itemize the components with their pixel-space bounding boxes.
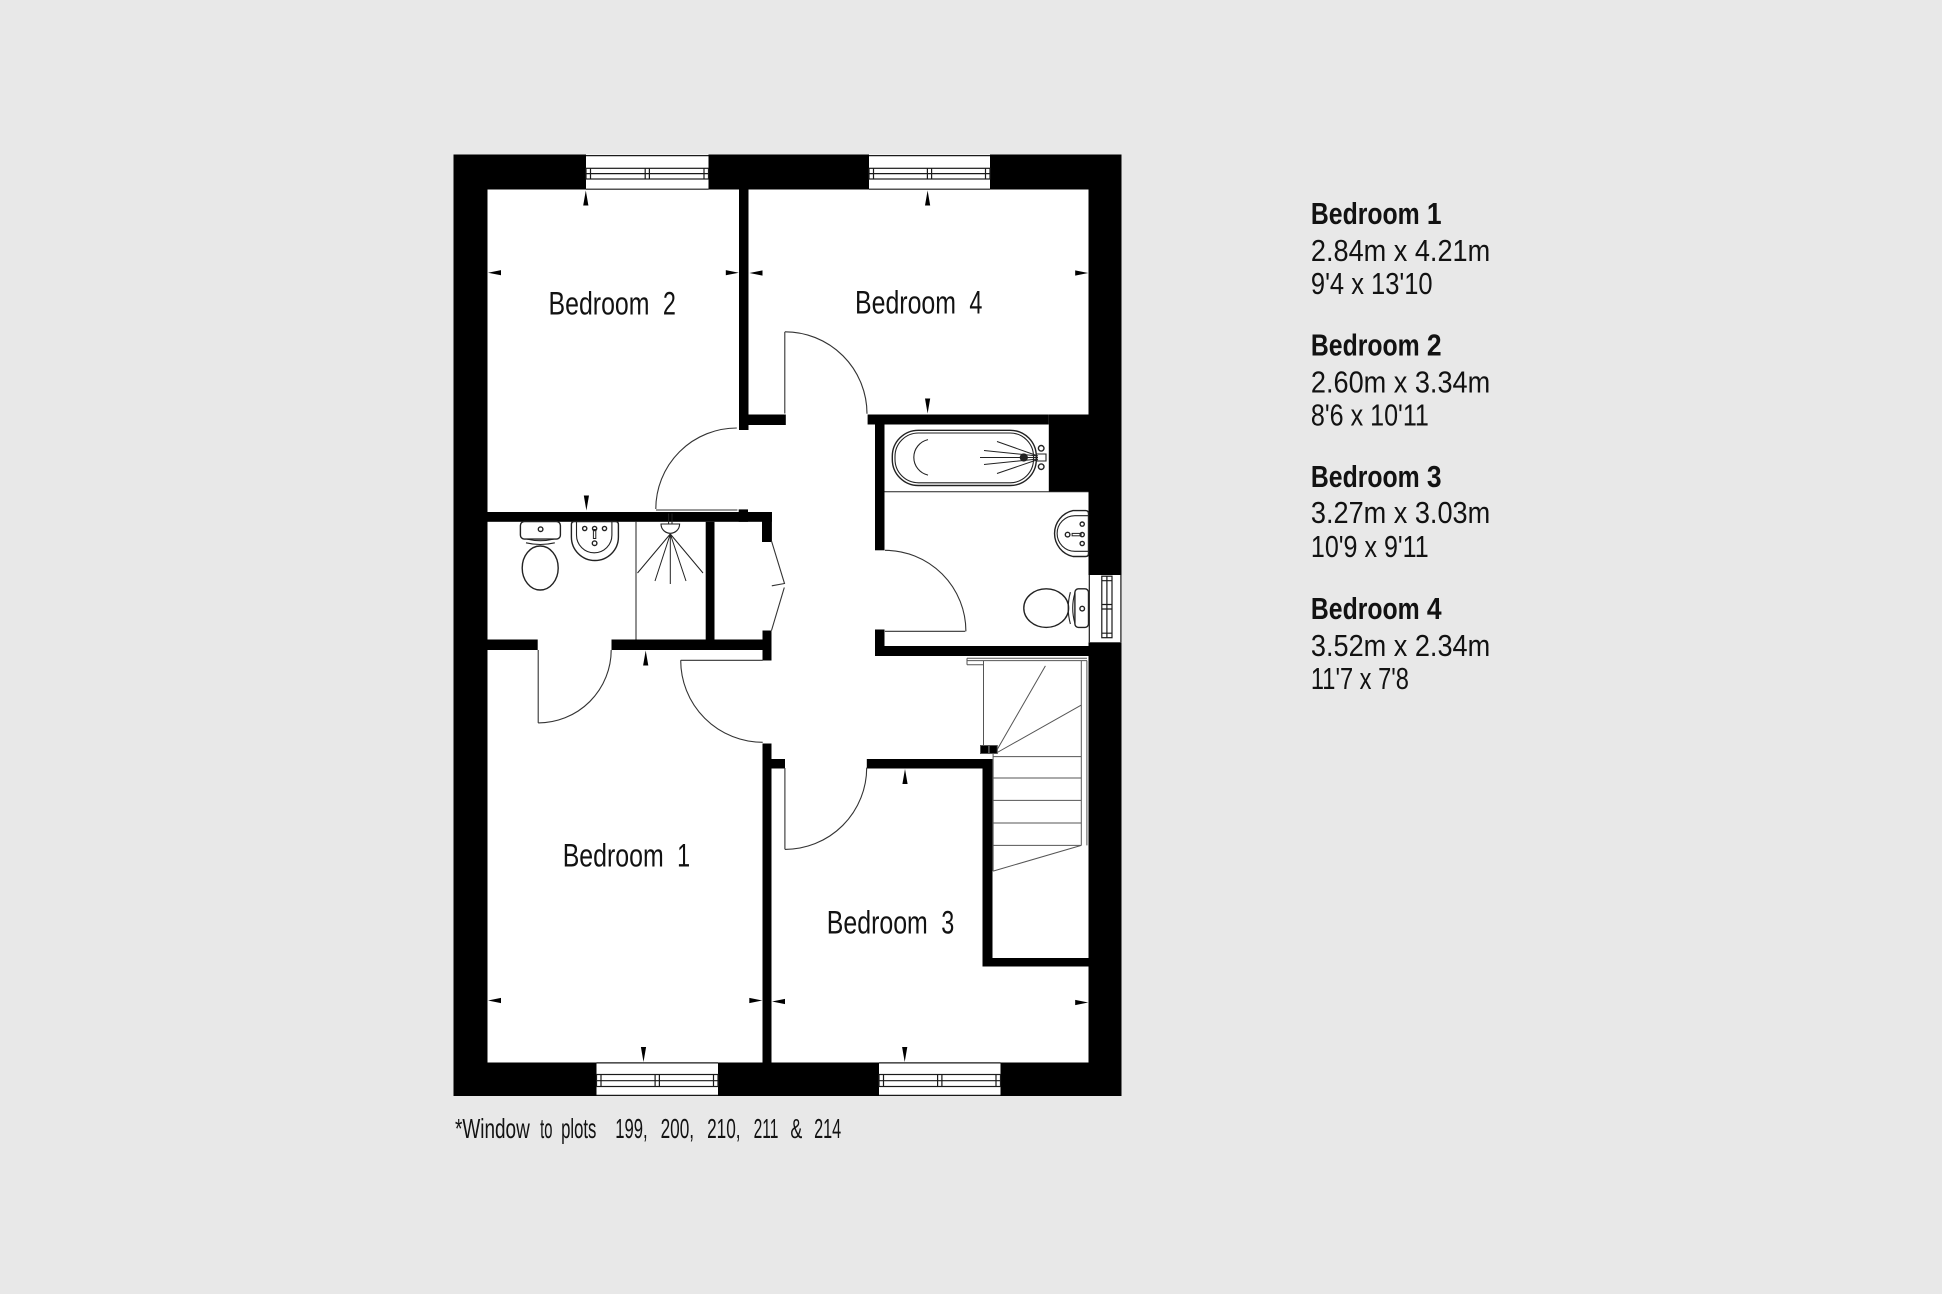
- svg-text:4: 4: [969, 284, 982, 320]
- svg-text:plots: plots: [561, 1113, 596, 1144]
- svg-text:2: 2: [1427, 328, 1442, 363]
- svg-text:Bedroom: Bedroom: [563, 838, 664, 874]
- svg-text:3: 3: [1427, 459, 1442, 494]
- svg-text:Bedroom: Bedroom: [549, 285, 650, 321]
- svg-text:4: 4: [1427, 591, 1442, 626]
- svg-text:1: 1: [1427, 196, 1442, 231]
- svg-text:200,: 200,: [661, 1113, 695, 1144]
- svg-text:10'9 x 9'11: 10'9 x 9'11: [1311, 529, 1429, 564]
- svg-text:1: 1: [677, 838, 690, 874]
- svg-text:210,: 210,: [707, 1113, 741, 1144]
- svg-text:3.27m x 3.03m: 3.27m x 3.03m: [1311, 495, 1490, 530]
- svg-text:211: 211: [754, 1113, 779, 1144]
- svg-text:*Window: *Window: [455, 1113, 530, 1144]
- svg-text:3: 3: [941, 905, 954, 941]
- svg-text:Bedroom: Bedroom: [1311, 196, 1420, 231]
- svg-text:11'7 x 7'8: 11'7 x 7'8: [1311, 661, 1409, 696]
- svg-text:&: &: [790, 1113, 802, 1144]
- svg-text:to: to: [540, 1113, 552, 1144]
- svg-text:199,: 199,: [615, 1113, 647, 1144]
- svg-text:3.52m x 2.34m: 3.52m x 2.34m: [1311, 628, 1490, 663]
- svg-text:214: 214: [814, 1113, 841, 1144]
- svg-text:2.60m x 3.34m: 2.60m x 3.34m: [1311, 365, 1490, 400]
- svg-text:8'6 x 10'11: 8'6 x 10'11: [1311, 398, 1429, 433]
- svg-text:2: 2: [663, 285, 676, 321]
- svg-text:2.84m x 4.21m: 2.84m x 4.21m: [1311, 233, 1490, 268]
- svg-text:Bedroom: Bedroom: [855, 284, 956, 320]
- svg-text:Bedroom: Bedroom: [1311, 591, 1420, 626]
- svg-text:9'4 x 13'10: 9'4 x 13'10: [1311, 266, 1433, 301]
- svg-text:Bedroom: Bedroom: [1311, 459, 1420, 494]
- svg-text:Bedroom: Bedroom: [827, 905, 928, 941]
- svg-text:Bedroom: Bedroom: [1311, 328, 1420, 363]
